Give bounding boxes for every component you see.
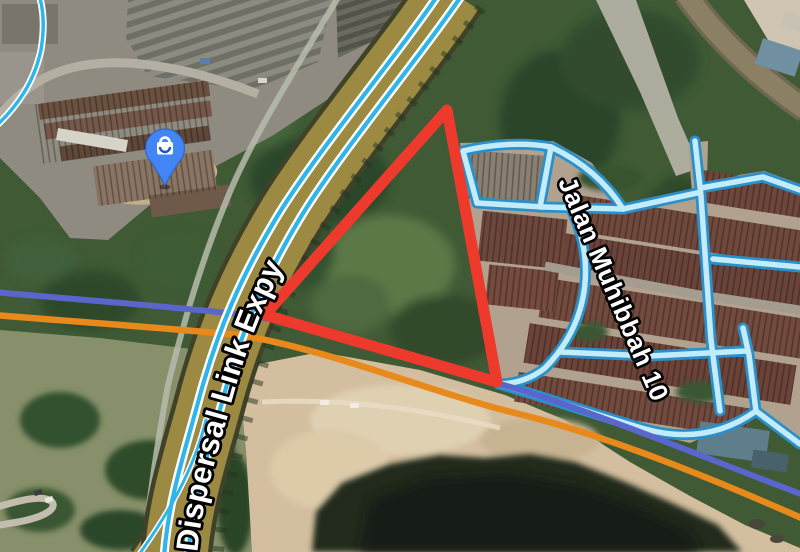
building [2,4,58,44]
vehicle [320,400,329,405]
sand-debris [749,519,765,529]
vehicle [258,78,267,83]
vehicle [350,403,359,408]
satellite-map-canvas[interactable]: Dispersal Link Expy Jalan Muhibbah 10 [0,0,800,552]
sand-debris [770,535,784,543]
satellite-map[interactable]: Dispersal Link Expy Jalan Muhibbah 10 [0,0,800,552]
vehicle [200,58,210,64]
